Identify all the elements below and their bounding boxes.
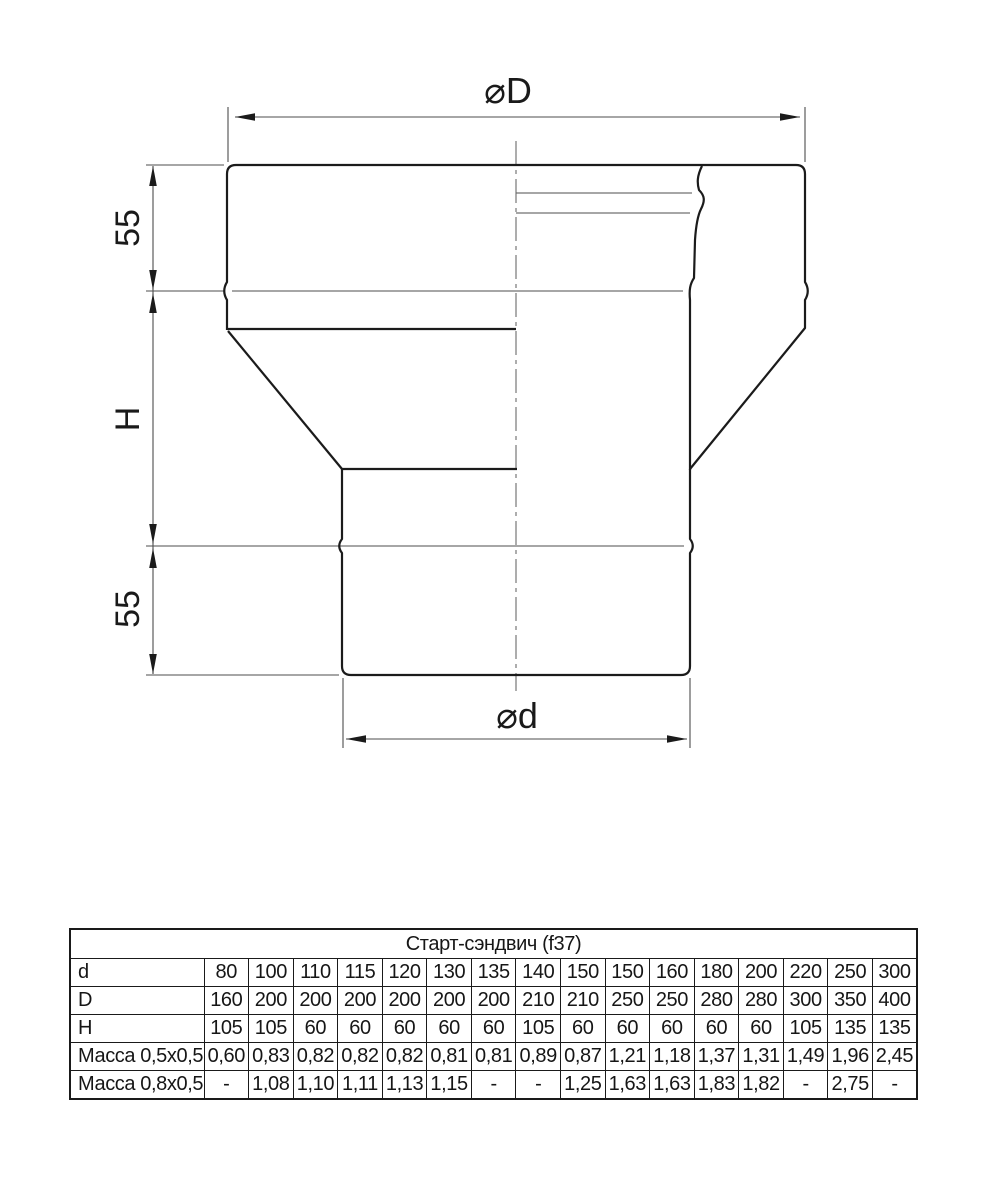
value-cell: 105 bbox=[783, 1015, 828, 1043]
value-cell: 150 bbox=[605, 959, 650, 987]
arrow-right-d bbox=[667, 735, 687, 743]
value-cell: - bbox=[783, 1071, 828, 1100]
value-cell: 0,87 bbox=[561, 1043, 606, 1071]
value-cell: 1,96 bbox=[828, 1043, 873, 1071]
value-cell: 200 bbox=[338, 987, 383, 1015]
value-cell: 105 bbox=[249, 1015, 294, 1043]
value-cell: 150 bbox=[561, 959, 606, 987]
value-cell: 0,60 bbox=[204, 1043, 249, 1071]
value-cell: 1,49 bbox=[783, 1043, 828, 1071]
value-cell: 200 bbox=[739, 959, 784, 987]
value-cell: 60 bbox=[739, 1015, 784, 1043]
arrow-up-55top bbox=[149, 166, 157, 186]
label-H: H bbox=[109, 407, 147, 432]
value-cell: 0,89 bbox=[516, 1043, 561, 1071]
value-cell: 135 bbox=[872, 1015, 917, 1043]
value-cell: 60 bbox=[338, 1015, 383, 1043]
value-cell: - bbox=[204, 1071, 249, 1100]
value-cell: 160 bbox=[204, 987, 249, 1015]
value-cell: 1,63 bbox=[650, 1071, 695, 1100]
value-cell: 250 bbox=[650, 987, 695, 1015]
value-cell: 140 bbox=[516, 959, 561, 987]
arrow-left-d bbox=[346, 735, 366, 743]
arrow-down-55bottom bbox=[149, 654, 157, 674]
value-cell: 250 bbox=[828, 959, 873, 987]
value-cell: 1,31 bbox=[739, 1043, 784, 1071]
arrow-up-55bottom bbox=[149, 548, 157, 568]
arrow-up-H bbox=[149, 293, 157, 313]
shell-right-edge-and-cone bbox=[690, 174, 808, 469]
value-cell: 210 bbox=[516, 987, 561, 1015]
technical-drawing: ⌀D ⌀d 55 H 55 bbox=[0, 0, 995, 820]
value-cell: 210 bbox=[561, 987, 606, 1015]
value-cell: 0,82 bbox=[293, 1043, 338, 1071]
value-cell: 1,13 bbox=[382, 1071, 427, 1100]
table-row: H10510560606060601056060606060105135135 bbox=[70, 1015, 917, 1043]
value-cell: 200 bbox=[427, 987, 472, 1015]
value-cell: 0,82 bbox=[338, 1043, 383, 1071]
value-cell: 105 bbox=[516, 1015, 561, 1043]
value-cell: 200 bbox=[249, 987, 294, 1015]
label-outer-diameter: ⌀D bbox=[484, 70, 532, 111]
dimension-lines bbox=[146, 107, 805, 748]
value-cell: 1,10 bbox=[293, 1071, 338, 1100]
value-cell: 60 bbox=[427, 1015, 472, 1043]
value-cell: 80 bbox=[204, 959, 249, 987]
value-cell: 1,63 bbox=[605, 1071, 650, 1100]
value-cell: 200 bbox=[471, 987, 516, 1015]
table-row: d801001101151201301351401501501601802002… bbox=[70, 959, 917, 987]
arrow-down-55top bbox=[149, 270, 157, 290]
value-cell: 300 bbox=[783, 987, 828, 1015]
value-cell: 220 bbox=[783, 959, 828, 987]
table-title-row: Старт-сэндвич (f37) bbox=[70, 929, 917, 959]
row-label-cell: d bbox=[70, 959, 204, 987]
value-cell: 1,08 bbox=[249, 1071, 294, 1100]
value-cell: 1,83 bbox=[694, 1071, 739, 1100]
value-cell: 1,25 bbox=[561, 1071, 606, 1100]
arrow-down-H bbox=[149, 524, 157, 544]
table-row: Масса 0,8x0,5-1,081,101,111,131,15--1,25… bbox=[70, 1071, 917, 1100]
value-cell: 180 bbox=[694, 959, 739, 987]
value-cell: 105 bbox=[204, 1015, 249, 1043]
value-cell: 2,75 bbox=[828, 1071, 873, 1100]
row-label-cell: Масса 0,5x0,5 bbox=[70, 1043, 204, 1071]
value-cell: 0,83 bbox=[249, 1043, 294, 1071]
value-cell: 135 bbox=[471, 959, 516, 987]
value-cell: 100 bbox=[249, 959, 294, 987]
value-cell: 60 bbox=[293, 1015, 338, 1043]
value-cell: 2,45 bbox=[872, 1043, 917, 1071]
value-cell: 115 bbox=[338, 959, 383, 987]
label-inner-diameter: ⌀d bbox=[496, 695, 538, 736]
shell-left-edge bbox=[224, 174, 227, 330]
row-label-cell: D bbox=[70, 987, 204, 1015]
value-cell: 280 bbox=[694, 987, 739, 1015]
value-cell: 160 bbox=[650, 959, 695, 987]
value-cell: 120 bbox=[382, 959, 427, 987]
label-55-bottom: 55 bbox=[109, 590, 147, 628]
inner-pipe-wall bbox=[690, 166, 704, 470]
table-row: D160200200200200200200210210250250280280… bbox=[70, 987, 917, 1015]
table-row: Масса 0,5x0,50,600,830,820,820,820,810,8… bbox=[70, 1043, 917, 1071]
value-cell: 60 bbox=[561, 1015, 606, 1043]
value-cell: 0,81 bbox=[471, 1043, 516, 1071]
row-label-cell: H bbox=[70, 1015, 204, 1043]
value-cell: 1,15 bbox=[427, 1071, 472, 1100]
value-cell: 1,21 bbox=[605, 1043, 650, 1071]
value-cell: 350 bbox=[828, 987, 873, 1015]
value-cell: 200 bbox=[293, 987, 338, 1015]
value-cell: 130 bbox=[427, 959, 472, 987]
value-cell: 60 bbox=[694, 1015, 739, 1043]
cone-left-edge bbox=[228, 331, 342, 469]
spec-table: Старт-сэндвич (f37) d8010011011512013013… bbox=[69, 928, 918, 1100]
value-cell: 250 bbox=[605, 987, 650, 1015]
value-cell: 60 bbox=[382, 1015, 427, 1043]
value-cell: 110 bbox=[293, 959, 338, 987]
arrow-left-D bbox=[235, 113, 255, 121]
value-cell: 135 bbox=[828, 1015, 873, 1043]
value-cell: 1,18 bbox=[650, 1043, 695, 1071]
table-title: Старт-сэндвич (f37) bbox=[70, 929, 917, 959]
value-cell: 280 bbox=[739, 987, 784, 1015]
value-cell: 1,11 bbox=[338, 1071, 383, 1100]
value-cell: 60 bbox=[471, 1015, 516, 1043]
value-cell: - bbox=[471, 1071, 516, 1100]
value-cell: - bbox=[872, 1071, 917, 1100]
value-cell: 60 bbox=[605, 1015, 650, 1043]
value-cell: 0,82 bbox=[382, 1043, 427, 1071]
label-55-top: 55 bbox=[109, 209, 147, 247]
value-cell: - bbox=[516, 1071, 561, 1100]
arrow-right-D bbox=[780, 113, 800, 121]
value-cell: 0,81 bbox=[427, 1043, 472, 1071]
value-cell: 1,82 bbox=[739, 1071, 784, 1100]
value-cell: 300 bbox=[872, 959, 917, 987]
page: ⌀D ⌀d 55 H 55 Старт-сэндвич (f37) d80100… bbox=[0, 0, 995, 1200]
value-cell: 200 bbox=[382, 987, 427, 1015]
value-cell: 400 bbox=[872, 987, 917, 1015]
row-label-cell: Масса 0,8x0,5 bbox=[70, 1071, 204, 1100]
value-cell: 60 bbox=[650, 1015, 695, 1043]
value-cell: 1,37 bbox=[694, 1043, 739, 1071]
